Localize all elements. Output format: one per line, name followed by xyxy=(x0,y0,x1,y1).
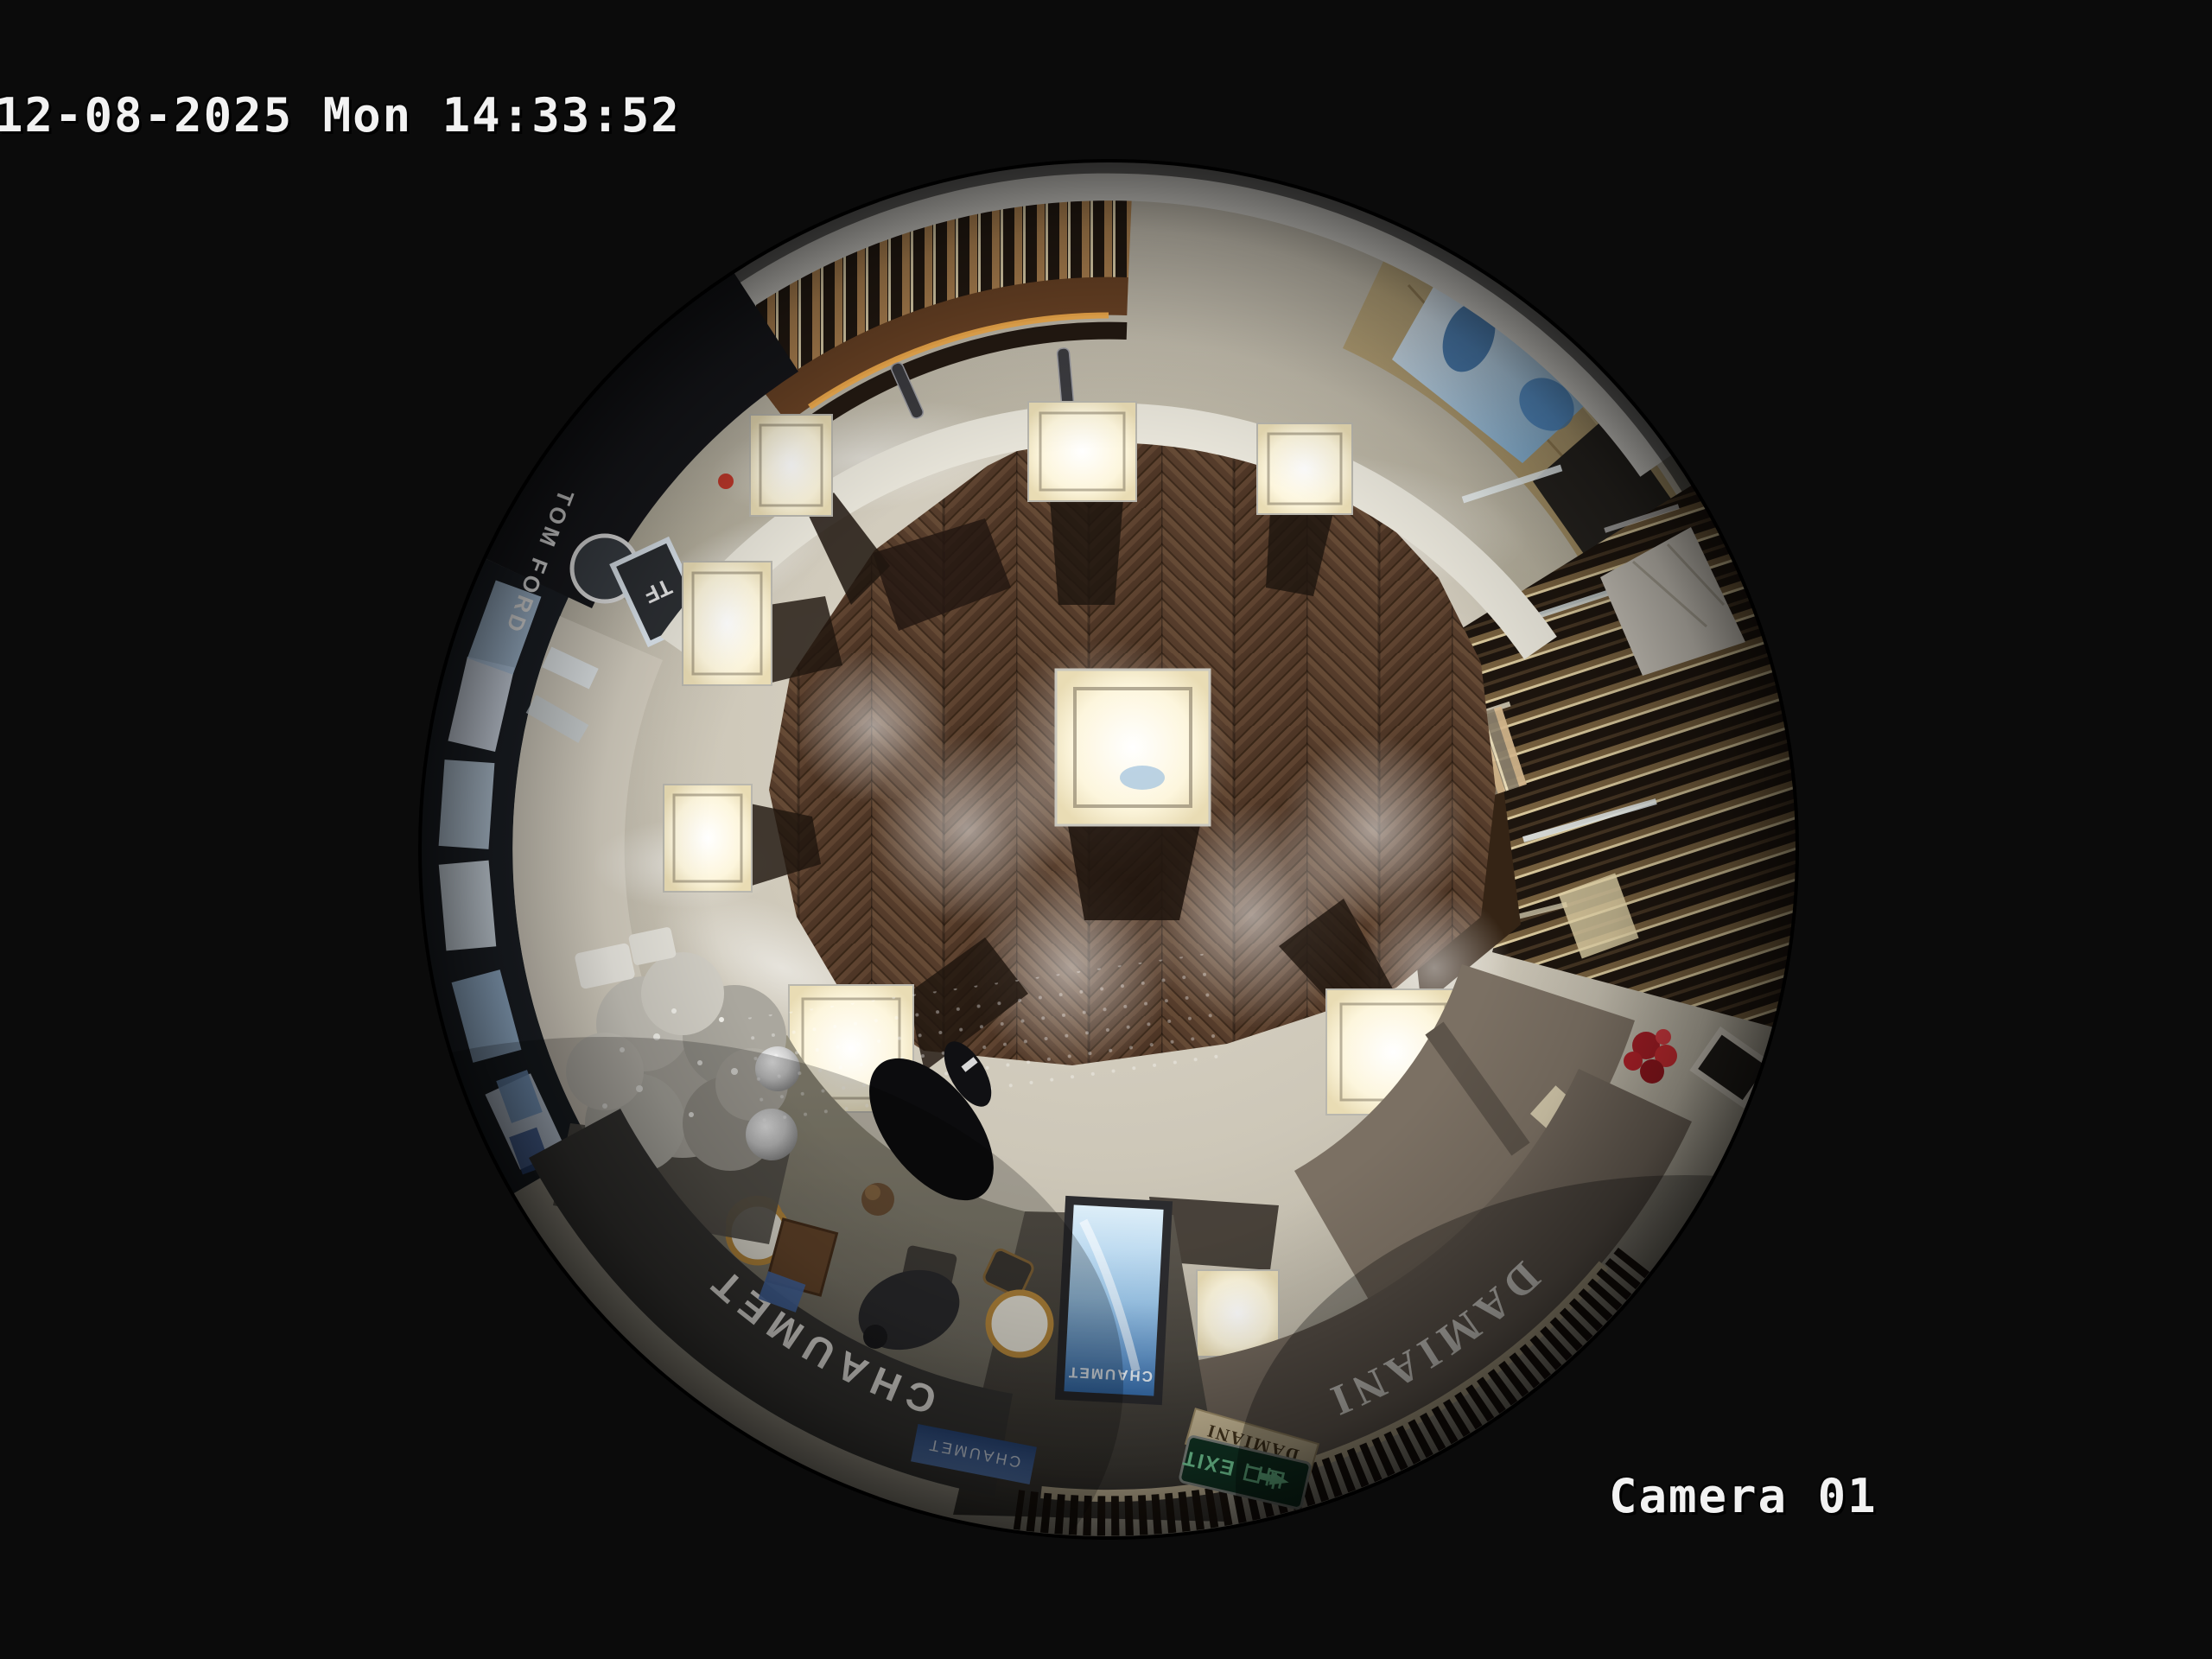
fisheye-scene: TF TOM FORD xyxy=(86,161,2134,1659)
timestamp-overlay: 12-08-2025 Mon 14:33:52 xyxy=(0,88,681,143)
camera-label: Camera 01 xyxy=(1609,1469,1878,1523)
lens-vignette xyxy=(420,161,1797,1538)
fisheye-camera-view: TF TOM FORD xyxy=(0,0,2212,1659)
cctv-monitor-screen: TF TOM FORD xyxy=(0,0,2212,1659)
